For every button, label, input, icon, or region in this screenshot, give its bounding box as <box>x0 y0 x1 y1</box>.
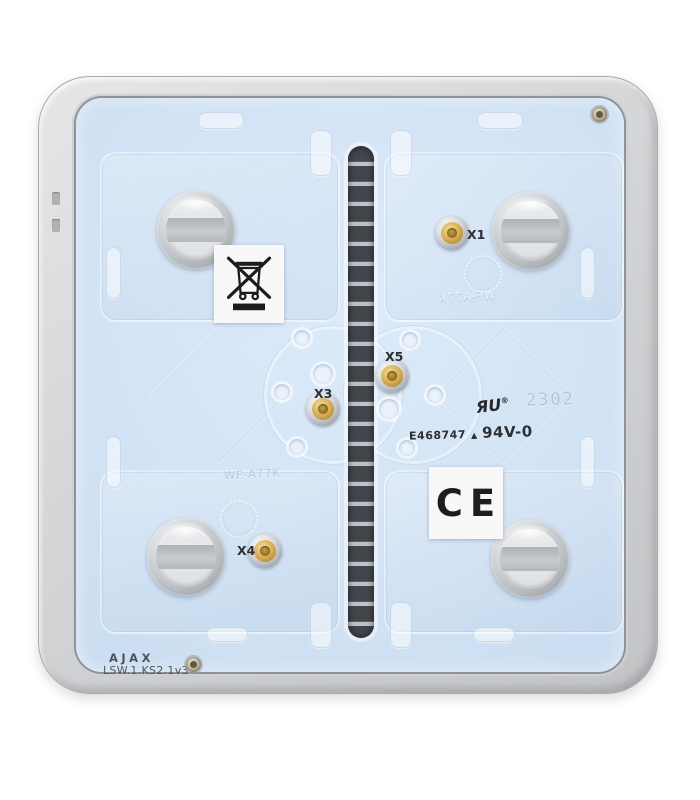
weee-crossed-out-wheelie-bin-icon <box>222 252 276 316</box>
mounting-hole <box>294 330 310 346</box>
frame-notch <box>52 219 60 232</box>
slot-flank-tab <box>310 602 332 648</box>
slot-flank-tab <box>310 130 332 176</box>
mounting-hole-large <box>379 399 399 419</box>
contact-x3-label: X3 <box>314 386 332 401</box>
molded-tab-bottom-right <box>473 627 515 642</box>
clip-tab-right-upper <box>580 247 595 299</box>
triangle-symbol: ▲ <box>471 431 477 440</box>
clip-tab-right-lower <box>580 436 595 488</box>
contact-x4-label: X4 <box>237 543 255 558</box>
slot-flank-tab <box>390 130 412 176</box>
screw-bottom-left <box>186 657 201 672</box>
mounting-hole <box>427 387 443 403</box>
brand-logo: AJAX <box>109 651 154 665</box>
mounting-hole <box>289 439 305 455</box>
metal-disc-gloss <box>511 196 552 213</box>
metal-disc-bottom-left <box>147 518 225 596</box>
slot-flank-tab <box>390 602 412 648</box>
mounting-hole <box>402 332 418 348</box>
molded-starburst-icon <box>220 500 258 538</box>
metal-disc-gloss <box>166 522 207 539</box>
screw-top-right <box>592 107 607 122</box>
ul-rating-line: E468747 ▲ 94V-0 <box>409 422 533 443</box>
molded-tab-top-left <box>198 112 244 129</box>
flammability-rating: 94V-0 <box>482 422 533 441</box>
ce-sticker: CE <box>429 467 503 539</box>
clip-tab-left-lower <box>106 436 121 488</box>
mounting-hole <box>274 384 290 400</box>
metal-disc-top-right <box>492 192 570 270</box>
molded-tab-bottom-left <box>206 627 248 642</box>
contact-x1 <box>435 216 469 250</box>
ul-file-number: E468747 <box>409 428 466 442</box>
mounting-hole-large <box>313 364 333 384</box>
molded-starburst-icon <box>464 255 502 293</box>
contact-x1-label: X1 <box>467 227 485 242</box>
metal-disc-gloss <box>510 524 551 541</box>
contact-x5 <box>375 359 409 393</box>
ul-recognized-component-icon: ЯU® <box>475 394 510 417</box>
ventilation-slot <box>348 146 374 638</box>
metal-disc-gloss <box>176 195 217 212</box>
ce-mark: CE <box>436 482 502 525</box>
engraved-date-code: 2302 <box>526 389 576 411</box>
model-number: LSW.1.KS2.1v3 <box>103 664 189 677</box>
weee-sticker <box>214 245 284 323</box>
product-photo-ajax-lightswitch-back: WF-A77K WF-A77K X1 X3 X4 X5 <box>0 0 700 800</box>
clip-tab-left-upper <box>106 247 121 299</box>
contact-x5-label: X5 <box>385 349 403 364</box>
frame-notch <box>52 192 60 205</box>
molded-tab-top-right <box>477 112 523 129</box>
